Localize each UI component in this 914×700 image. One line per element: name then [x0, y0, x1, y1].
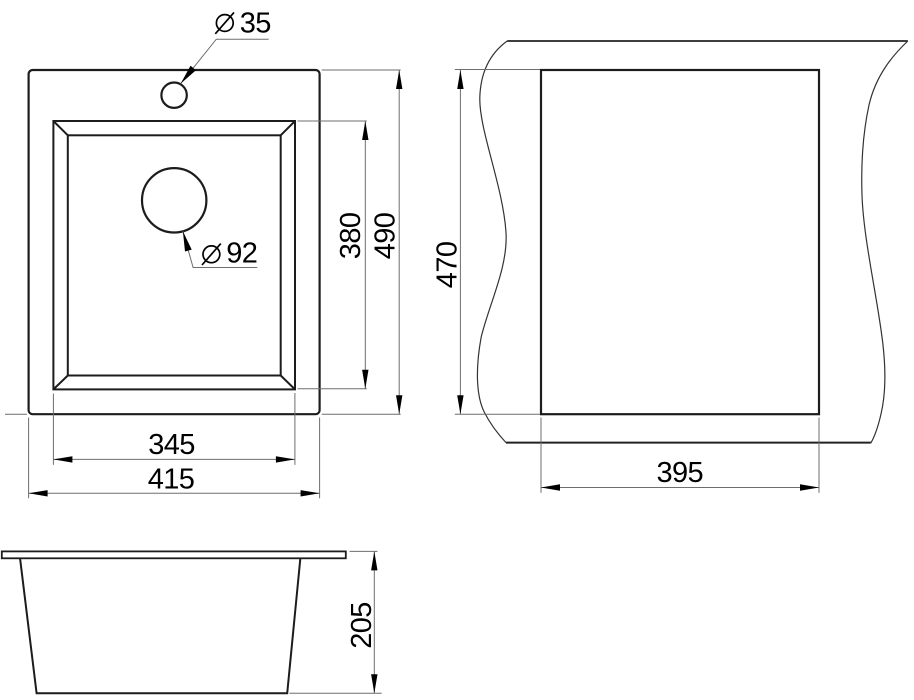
svg-text:470: 470 [432, 242, 464, 289]
svg-text:415: 415 [148, 463, 195, 495]
svg-text:205: 205 [346, 602, 378, 649]
svg-text:345: 345 [148, 429, 195, 461]
svg-text:92: 92 [226, 237, 257, 269]
svg-text:35: 35 [240, 8, 271, 40]
svg-text:490: 490 [369, 213, 401, 260]
svg-text:380: 380 [335, 213, 367, 260]
svg-text:395: 395 [657, 457, 704, 489]
